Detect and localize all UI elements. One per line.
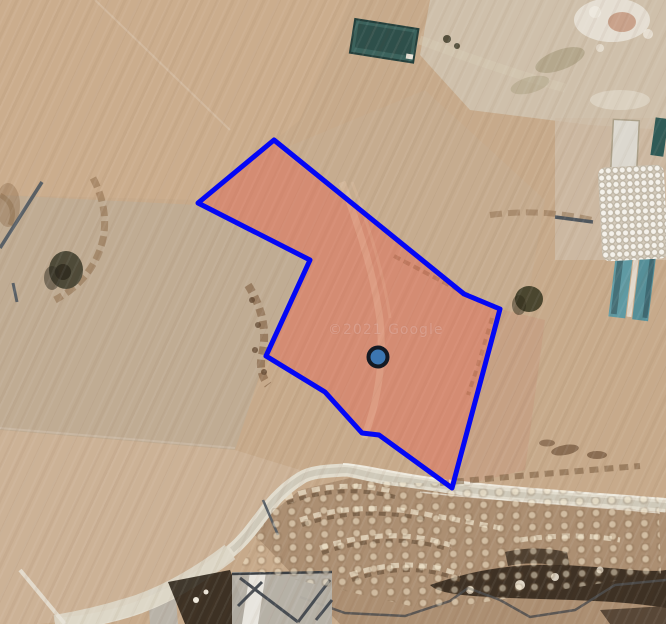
frame-structure <box>232 572 332 624</box>
location-marker-dot[interactable] <box>369 348 388 367</box>
white-dot-stack <box>598 164 666 261</box>
map-canvas[interactable]: ©2021 Google <box>0 0 666 624</box>
